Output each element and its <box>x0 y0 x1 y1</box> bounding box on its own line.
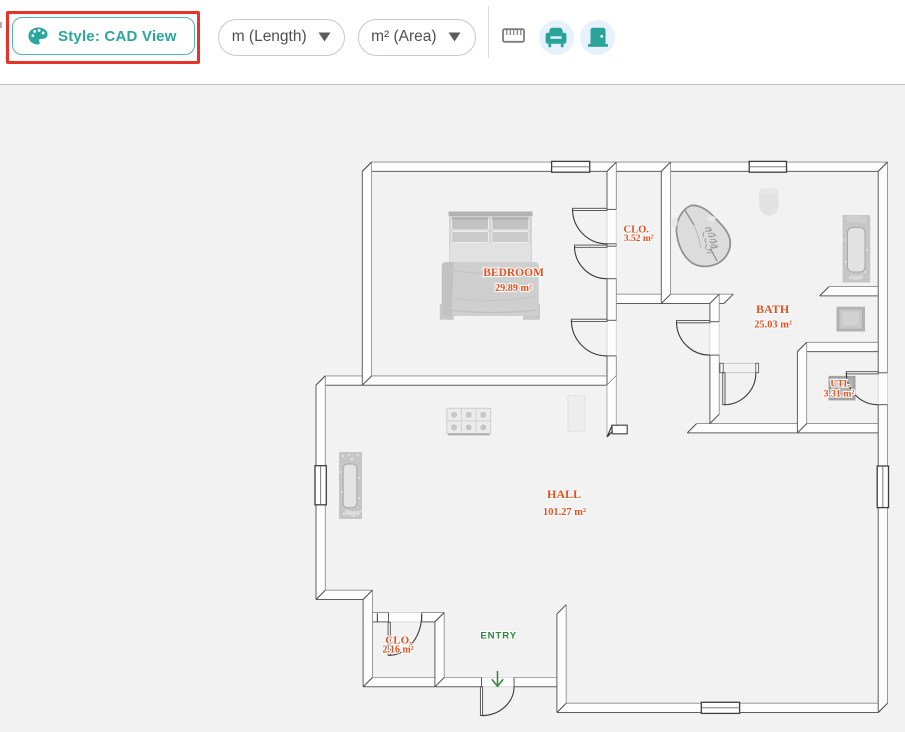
svg-text:25.03 m²: 25.03 m² <box>754 320 792 331</box>
svg-text:2.16 m²: 2.16 m² <box>382 644 413 655</box>
svg-text:3.52 m²: 3.52 m² <box>624 234 654 244</box>
svg-text:ENTRY: ENTRY <box>480 631 517 642</box>
svg-text:HALL: HALL <box>547 487 581 501</box>
svg-text:BATH: BATH <box>756 302 790 316</box>
svg-text:101.27 m²: 101.27 m² <box>543 507 586 518</box>
svg-text:29.89 m²: 29.89 m² <box>495 283 532 294</box>
svg-text:3.31 m²: 3.31 m² <box>824 389 855 400</box>
svg-text:BEDROOM: BEDROOM <box>483 267 544 279</box>
